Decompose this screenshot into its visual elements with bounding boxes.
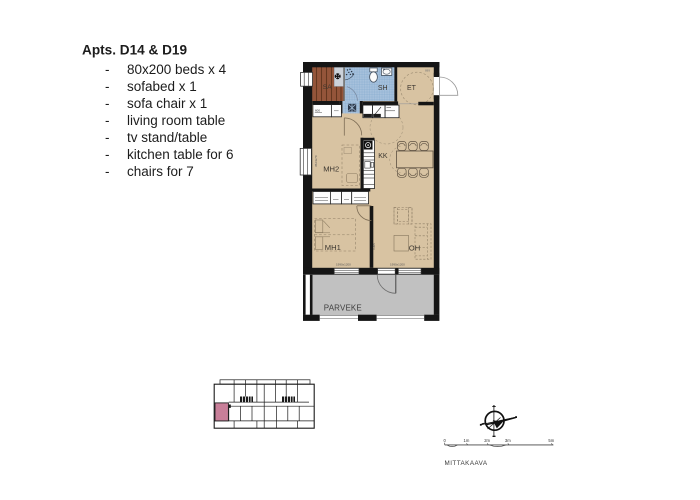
svg-text:OH: OH <box>409 244 420 253</box>
svg-text:kitchen table for 6: kitchen table for 6 <box>127 147 234 162</box>
svg-text:VJ05: VJ05 <box>372 243 376 250</box>
svg-text:5m: 5m <box>548 438 554 443</box>
svg-text:Apts. D14 & D19: Apts. D14 & D19 <box>82 43 187 58</box>
svg-text:SH: SH <box>378 85 388 92</box>
svg-text:-: - <box>105 130 110 145</box>
svg-text:0: 0 <box>444 438 447 443</box>
svg-text:MH1: MH1 <box>325 243 341 252</box>
svg-text:MH2: MH2 <box>323 165 339 174</box>
svg-text:1990x1200: 1990x1200 <box>336 262 351 266</box>
svg-text:MITTAKAAVA: MITTAKAAVA <box>445 460 488 467</box>
svg-text:living room table: living room table <box>127 113 225 128</box>
svg-text:889: 889 <box>425 69 430 73</box>
svg-text:ET: ET <box>407 85 417 92</box>
svg-text:tv stand/table: tv stand/table <box>127 130 207 145</box>
svg-text:80x200 beds x 4: 80x200 beds x 4 <box>127 62 227 77</box>
svg-text:600: 600 <box>315 109 320 113</box>
svg-text:2m: 2m <box>484 438 490 443</box>
svg-text:KK: KK <box>378 153 388 160</box>
svg-text:sofabed x 1: sofabed x 1 <box>127 79 197 94</box>
svg-text:SA: SA <box>323 84 332 91</box>
svg-text:sofa chair x 1: sofa chair x 1 <box>127 96 207 111</box>
svg-text:-: - <box>105 79 110 94</box>
svg-text:3524x70: 3524x70 <box>314 155 318 167</box>
svg-text:3m: 3m <box>505 438 511 443</box>
svg-text:-: - <box>105 164 110 179</box>
svg-text:chairs for 7: chairs for 7 <box>127 164 194 179</box>
svg-text:1990x1200: 1990x1200 <box>390 262 405 266</box>
svg-text:-: - <box>105 96 110 111</box>
svg-text:PARVEKE: PARVEKE <box>324 303 362 312</box>
svg-text:-: - <box>105 62 110 77</box>
svg-text:1m: 1m <box>464 438 470 443</box>
svg-text:-: - <box>105 147 110 162</box>
svg-text:-: - <box>105 113 110 128</box>
